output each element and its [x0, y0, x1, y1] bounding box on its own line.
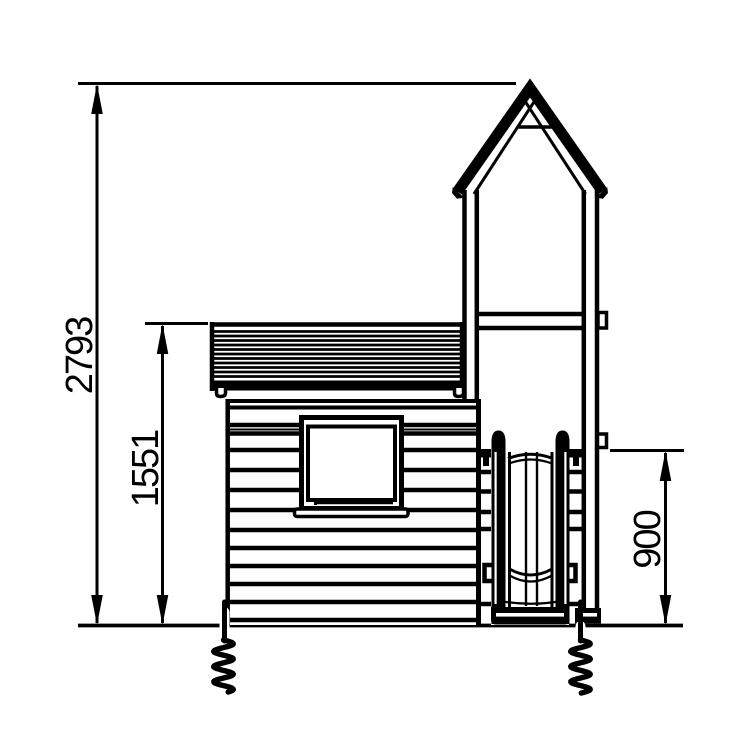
- svg-text:900: 900: [627, 510, 669, 568]
- svg-text:1551: 1551: [125, 430, 167, 507]
- svg-text:2793: 2793: [59, 317, 101, 394]
